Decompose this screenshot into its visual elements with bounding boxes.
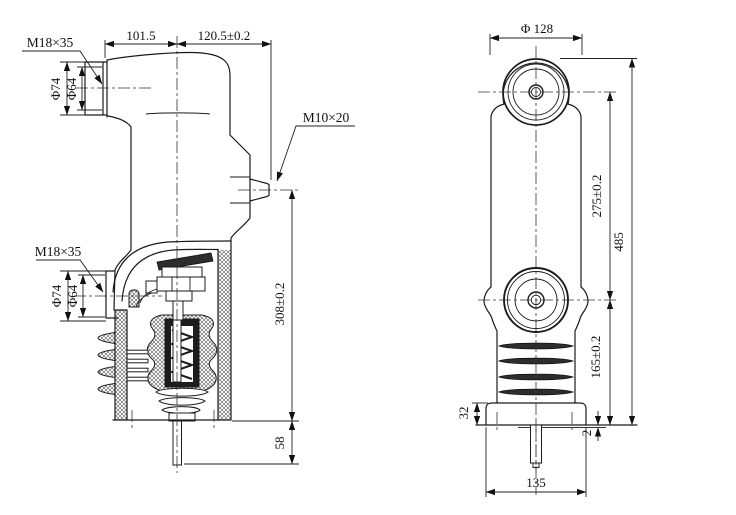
dim-58: 58 bbox=[272, 437, 287, 450]
dim-275: 275±0.2 bbox=[589, 175, 604, 218]
upper-terminal-boss bbox=[85, 62, 107, 115]
label-m10x20: M10×20 bbox=[303, 110, 350, 125]
upper-conductor-clamp bbox=[136, 253, 213, 320]
label-dia64-lower: Φ64 bbox=[65, 284, 80, 307]
fin-shed bbox=[98, 333, 115, 344]
dim-308: 308±0.2 bbox=[272, 283, 287, 326]
interrupter-cavity bbox=[165, 319, 199, 387]
label-dia74-upper: Φ74 bbox=[48, 77, 63, 100]
label-m18x35-lower: M18×35 bbox=[35, 244, 82, 259]
fin-shed bbox=[98, 367, 115, 378]
fin-shed bbox=[98, 350, 115, 361]
dim-485: 485 bbox=[611, 232, 626, 252]
front-view: Φ 128 275±0.2 485 165±0.2 32 2 135 bbox=[456, 21, 637, 497]
label-dia74-lower: Φ74 bbox=[49, 284, 64, 307]
label-m18x35-upper: M18×35 bbox=[27, 35, 74, 50]
dim-101-5: 101.5 bbox=[126, 28, 155, 43]
label-dia64-upper: Φ64 bbox=[64, 77, 79, 100]
stem-nut bbox=[166, 291, 192, 301]
dim-120-5: 120.5±0.2 bbox=[198, 28, 251, 43]
dim-165: 165±0.2 bbox=[588, 336, 603, 379]
dim-135: 135 bbox=[526, 475, 546, 490]
fin-shed bbox=[98, 384, 115, 395]
technical-drawing-page: M18×35 101.5 120.5±0.2 Φ74 Φ64 M10×20 M1… bbox=[0, 0, 736, 515]
dim-2: 2 bbox=[579, 430, 594, 437]
drawing-canvas: M18×35 101.5 120.5±0.2 Φ74 Φ64 M10×20 M1… bbox=[0, 0, 736, 515]
lower-bellows bbox=[156, 388, 208, 421]
dim-32: 32 bbox=[456, 407, 471, 420]
front-labels: Φ 128 275±0.2 485 165±0.2 32 2 135 bbox=[456, 21, 626, 490]
dim-dia128: Φ 128 bbox=[521, 21, 553, 36]
side-view: M18×35 101.5 120.5±0.2 Φ74 Φ64 M10×20 M1… bbox=[22, 28, 355, 473]
front-outline bbox=[476, 59, 637, 468]
